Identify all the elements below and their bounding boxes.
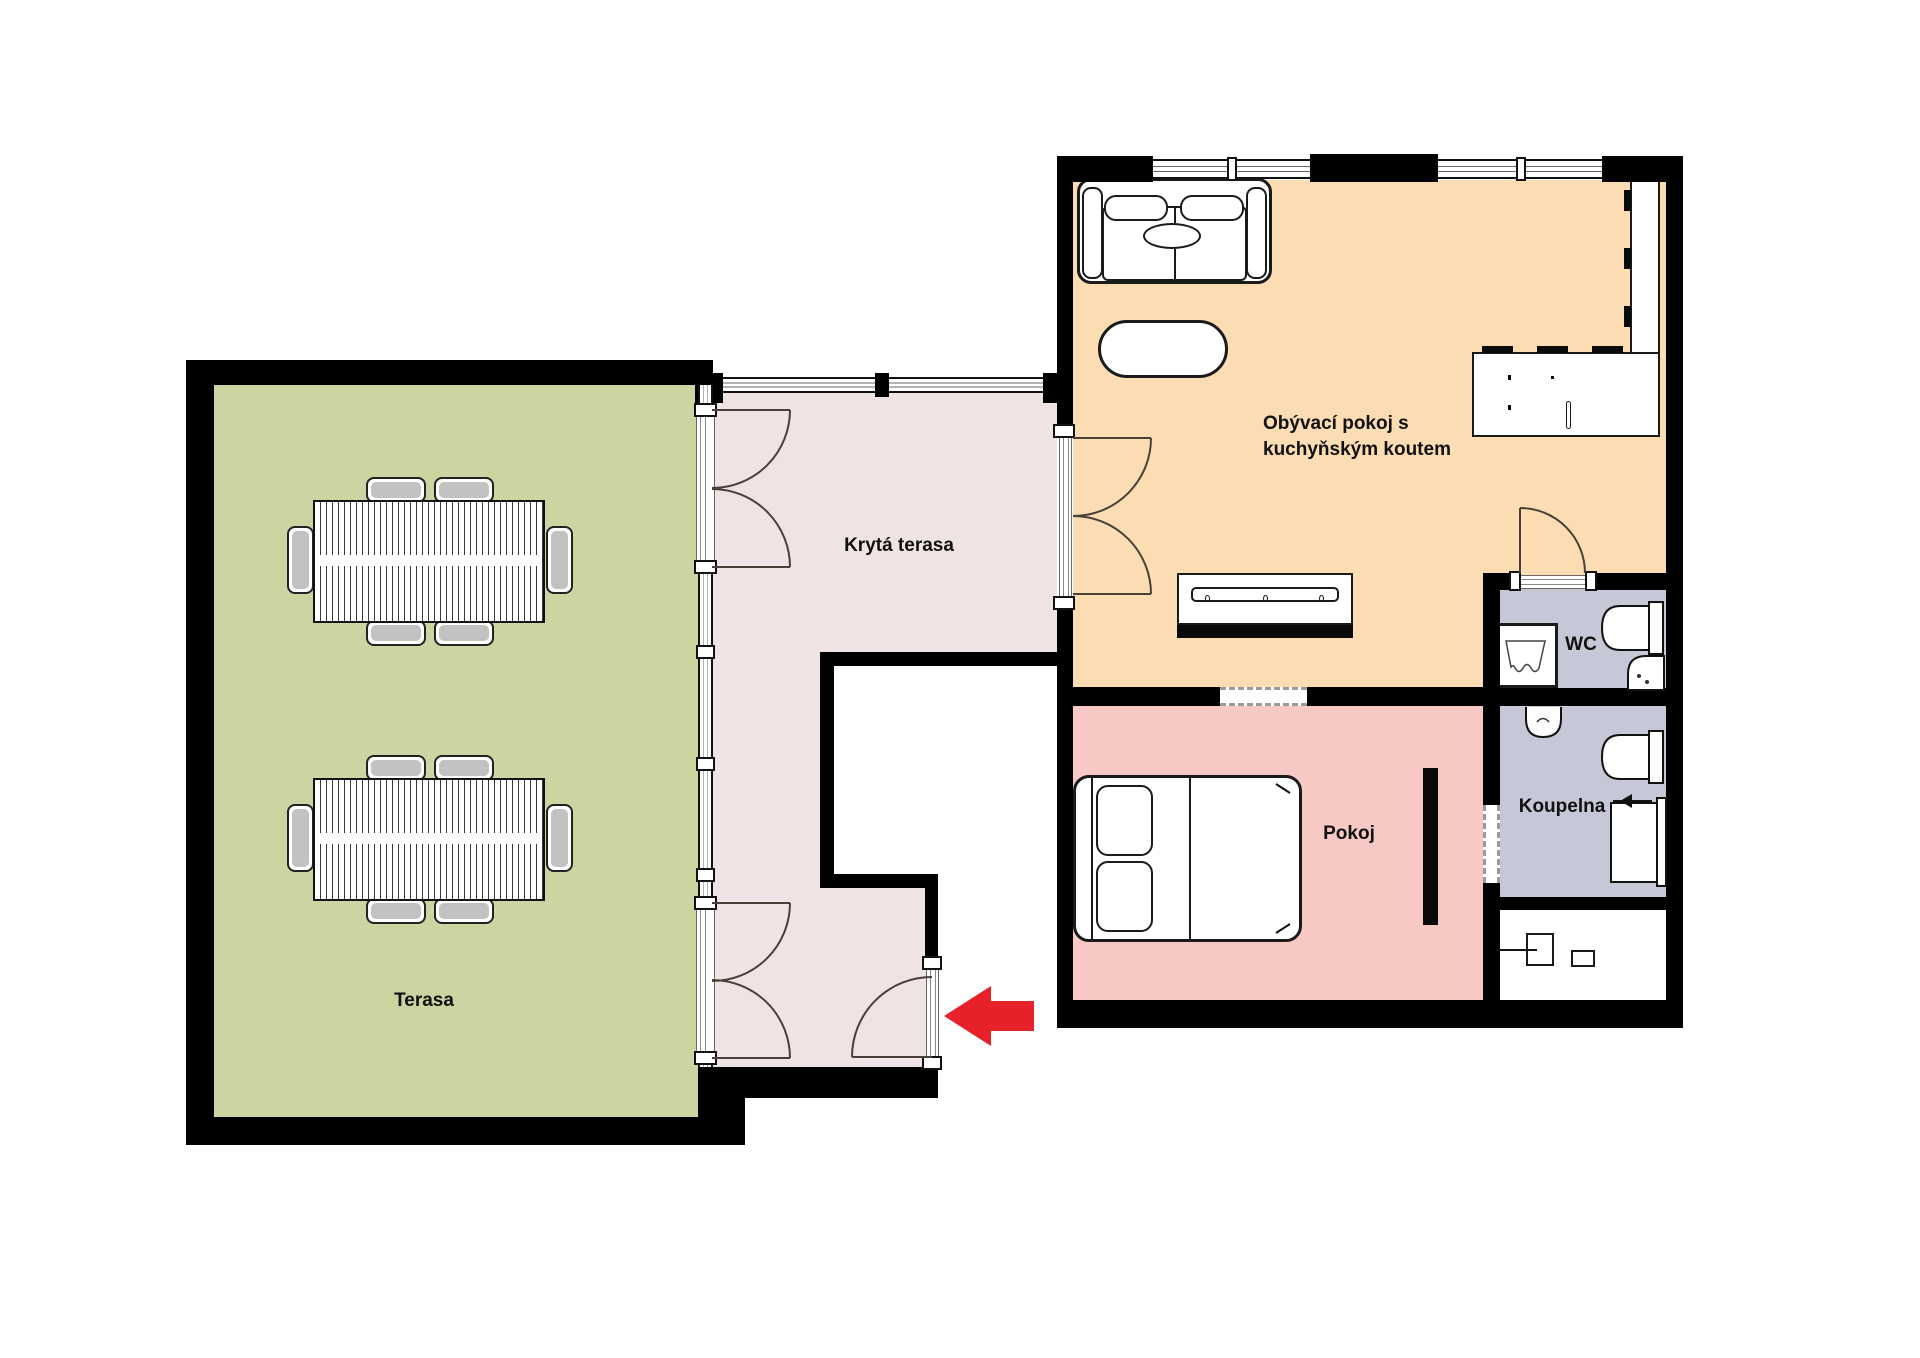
wall-segment — [186, 1117, 745, 1145]
french-door-frame — [1059, 434, 1072, 598]
hob-tick — [1482, 346, 1513, 353]
outside-strip — [938, 874, 1057, 1067]
terrace-label: Terasa — [394, 990, 454, 1012]
sliding-door-opening — [1220, 687, 1307, 706]
chair — [434, 620, 494, 646]
counter-dot — [1551, 376, 1554, 379]
washing-machine — [1493, 623, 1558, 688]
chair — [366, 898, 426, 924]
bedroom-label: Pokoj — [1323, 823, 1375, 845]
wall-segment — [820, 874, 938, 888]
door-jamb — [1585, 571, 1597, 591]
wall-segment — [1483, 706, 1500, 805]
door-jamb — [1053, 596, 1075, 610]
glazing-mullion — [696, 645, 715, 659]
table-seam — [316, 555, 542, 566]
pillow — [1096, 861, 1153, 932]
door-jamb — [922, 956, 942, 970]
sofa-armrest — [1082, 187, 1103, 279]
cabinet-handle — [1624, 190, 1631, 211]
tv-lowboard — [1177, 573, 1353, 625]
chair — [434, 898, 494, 924]
wc-label: WC — [1565, 634, 1597, 656]
door-jamb — [1053, 424, 1075, 438]
window-mullion — [1227, 157, 1237, 181]
terrace-door-frame — [696, 410, 715, 567]
bed-headboard-line — [1091, 778, 1093, 939]
door-jamb — [694, 896, 717, 910]
bed — [1073, 775, 1302, 942]
wall-segment — [1483, 688, 1683, 706]
wall-segment — [1483, 883, 1500, 1028]
hob-tick — [1592, 346, 1623, 353]
utility-room-floor — [1500, 897, 1666, 1000]
wall-segment — [1057, 687, 1073, 1028]
counter-dot — [1508, 375, 1511, 380]
tv-knob — [1319, 595, 1324, 602]
cabinet-handle — [1624, 306, 1631, 327]
tv-shelf — [1177, 625, 1353, 638]
sofa-back-cushion — [1180, 195, 1244, 221]
tv-knob — [1205, 595, 1210, 602]
tv-knob — [1263, 595, 1268, 602]
window-pier — [875, 373, 889, 397]
wall-segment — [1310, 154, 1438, 182]
cabinet-handle — [1624, 248, 1631, 269]
wall-segment — [698, 1067, 745, 1145]
wall-segment — [1483, 573, 1500, 706]
wall-segment — [925, 874, 938, 968]
chair — [287, 526, 314, 594]
wall-segment — [820, 652, 834, 888]
glazing-mullion — [696, 757, 715, 771]
wall-segment — [1057, 687, 1220, 706]
window-mullion — [1516, 157, 1526, 181]
floor-plan: Terasa Krytá terasa Obývací pokoj s kuch… — [0, 0, 1920, 1358]
wall-segment — [1057, 600, 1073, 687]
utility-box — [1571, 950, 1595, 967]
counter-handle — [1566, 401, 1571, 429]
covered-terrace-label: Krytá terasa — [844, 535, 954, 557]
hob-tick — [1537, 346, 1568, 353]
wall-segment — [1307, 687, 1500, 706]
sofa-back-cushion — [1104, 195, 1168, 221]
sofa — [1077, 178, 1272, 284]
wall-segment — [1666, 156, 1683, 1028]
wall-segment — [1057, 156, 1153, 182]
chair — [287, 804, 314, 872]
terrace-door-frame — [696, 903, 715, 1058]
door-jamb — [922, 1056, 942, 1070]
glazing-mullion — [696, 868, 715, 882]
wall-segment — [186, 360, 214, 1145]
wc-door-frame — [1517, 575, 1587, 589]
wall-segment — [1587, 573, 1683, 590]
living-room-label-line1: Obývací pokoj s — [1263, 411, 1451, 437]
sofa-ottoman — [1143, 223, 1201, 249]
chair — [546, 526, 573, 594]
sofa-armrest — [1246, 187, 1267, 279]
chair — [546, 804, 573, 872]
chair — [366, 620, 426, 646]
blanket-line — [1189, 778, 1191, 939]
door-jamb — [694, 560, 717, 574]
door-jamb — [694, 1051, 717, 1065]
wall-segment — [186, 360, 713, 385]
wall-segment — [820, 652, 1058, 666]
living-room-label: Obývací pokoj s kuchyňským koutem — [1263, 411, 1451, 463]
table-seam — [316, 833, 542, 844]
outside-recess — [834, 652, 1057, 888]
entrance-door-frame — [926, 968, 939, 1058]
door-jamb — [1509, 571, 1521, 591]
kitchen-counter — [1472, 352, 1660, 437]
pillow — [1096, 785, 1153, 856]
counter-dot — [1508, 405, 1511, 410]
wall-segment — [1057, 156, 1073, 432]
wardrobe — [1423, 768, 1438, 925]
bathroom-label: Koupelna — [1519, 796, 1606, 818]
living-room-label-line2: kuchyňským koutem — [1263, 437, 1451, 463]
bathroom-door-opening — [1483, 805, 1500, 883]
boiler — [1526, 933, 1554, 966]
wall-segment — [1057, 1000, 1683, 1028]
coffee-table — [1098, 320, 1228, 378]
wall-segment — [1500, 897, 1666, 910]
door-jamb — [694, 403, 717, 417]
